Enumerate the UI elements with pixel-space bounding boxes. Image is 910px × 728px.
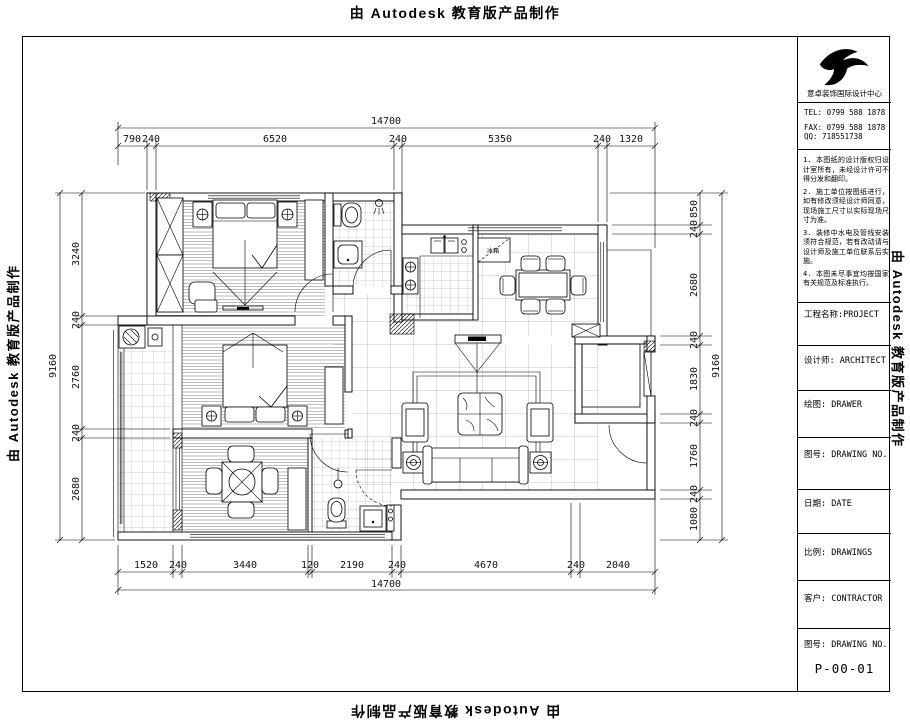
field-project: 工程名称:PROJECT [804,308,879,320]
svg-text:850: 850 [689,200,700,218]
fax-line: FAX: 0799 588 1878 [804,123,885,132]
svg-text:2760: 2760 [71,365,82,389]
svg-text:240: 240 [593,134,611,145]
svg-text:9160: 9160 [711,354,722,378]
svg-text:1520: 1520 [134,560,158,571]
drawing-number: P-00-01 [798,661,891,676]
pillow-icon [256,407,285,422]
louver-wardrobe-icon [325,367,343,424]
dining-table-icon [516,270,570,300]
pillow-icon [247,203,275,218]
field-scale: 比例: DRAWINGS [804,546,872,558]
svg-text:1830: 1830 [689,367,700,391]
svg-text:4670: 4670 [474,560,498,571]
svg-text:5350: 5350 [488,134,512,145]
door-hatch [644,341,655,351]
column-hatch [390,314,414,334]
louver-cabinet-icon [288,468,306,530]
svg-text:240: 240 [389,134,407,145]
svg-text:14700: 14700 [371,116,401,127]
note-item: 3. 装修中水电及管线安装须符合规范，若有改动请与设计师及施工单位联系后实施。 [803,229,889,267]
field-date: 日期: DATE [804,497,852,509]
note-item: 4. 本图未尽事宜均按国家有关规范及标准执行。 [803,270,889,289]
title-block: 意卓装饰国际设计中心 TEL: 0799 588 1878 FAX: 0799 … [797,36,891,692]
kitchen-sink-icon [431,238,444,253]
pier-hatch [173,510,182,530]
svg-text:9160: 9160 [48,354,59,378]
chair-icon [228,446,254,462]
svg-text:240: 240 [142,134,160,145]
tel-line: TEL: 0799 588 1878 [804,108,885,117]
svg-text:2040: 2040 [606,560,630,571]
tiny-label [237,307,249,310]
svg-text:790: 790 [123,134,141,145]
qq-line: QQ: 718551738 [804,132,863,141]
svg-text:2680: 2680 [689,273,700,297]
entry-door-arc [609,425,647,463]
svg-text:6520: 6520 [263,134,287,145]
chair-icon [228,502,254,518]
sofa-icon [428,448,523,482]
note-item: 1. 本图纸的设计版权归设计室所有，未经设计许可不得分发和翻印。 [803,156,889,185]
louver-wardrobe-icon [305,200,323,280]
chair-icon [262,468,278,494]
pillow-icon [225,407,254,422]
svg-text:3240: 3240 [71,242,82,266]
field-drawing-no: 图号: DRAWING NO. [804,448,888,460]
field-drawing-no-2: 图号: DRAWING NO. [804,638,888,650]
field-drawer: 绘图: DRAWER [804,398,862,410]
svg-text:240: 240 [689,331,700,349]
svg-text:240: 240 [388,560,406,571]
autodesk-stamp-bottom: 由 Autodesk 教育版产品制作 [350,701,561,721]
notes-block: 1. 本图纸的设计版权归设计室所有，未经设计许可不得分发和翻印。 2. 施工单位… [803,156,889,292]
balcony-furniture [119,326,162,348]
svg-text:1320: 1320 [619,134,643,145]
bed-icon [223,345,287,407]
floor-plan: 冰箱 [0,0,910,728]
svg-text:2680: 2680 [71,477,82,501]
fridge-label: 冰箱 [487,247,499,255]
svg-text:240: 240 [169,560,187,571]
svg-text:14700: 14700 [371,579,401,590]
pillow-icon [216,203,245,218]
svg-text:120: 120 [301,560,319,571]
note-item: 2. 施工单位按图纸进行，如有修改须经设计师同意，现场施工尺寸以实际现场尺寸为准… [803,188,889,226]
pier-hatch [173,433,182,448]
autodesk-stamp-top: 由 Autodesk 教育版产品制作 [350,3,561,23]
svg-text:2190: 2190 [340,560,364,571]
field-contractor: 客户: CONTRACTOR [804,592,882,604]
autodesk-stamp-left: 由 Autodesk 教育版产品制作 [3,265,22,462]
svg-text:240: 240 [689,220,700,238]
chair-icon [206,468,222,494]
company-logo-bird-icon [812,44,878,88]
svg-text:240: 240 [71,424,82,442]
svg-text:1080: 1080 [689,507,700,531]
balcony-floor [118,348,173,532]
svg-text:240: 240 [71,311,82,329]
svg-text:240: 240 [567,560,585,571]
field-architect: 设计师: ARCHITECT [804,354,886,366]
toilet-icon [334,204,341,226]
svg-text:1760: 1760 [689,444,700,468]
svg-text:240: 240 [689,409,700,427]
svg-text:240: 240 [689,485,700,503]
autodesk-stamp-right: 由 Autodesk 教育版产品制作 [889,250,908,447]
svg-text:3440: 3440 [233,560,257,571]
company-name: 意卓装饰国际设计中心 [798,88,891,99]
